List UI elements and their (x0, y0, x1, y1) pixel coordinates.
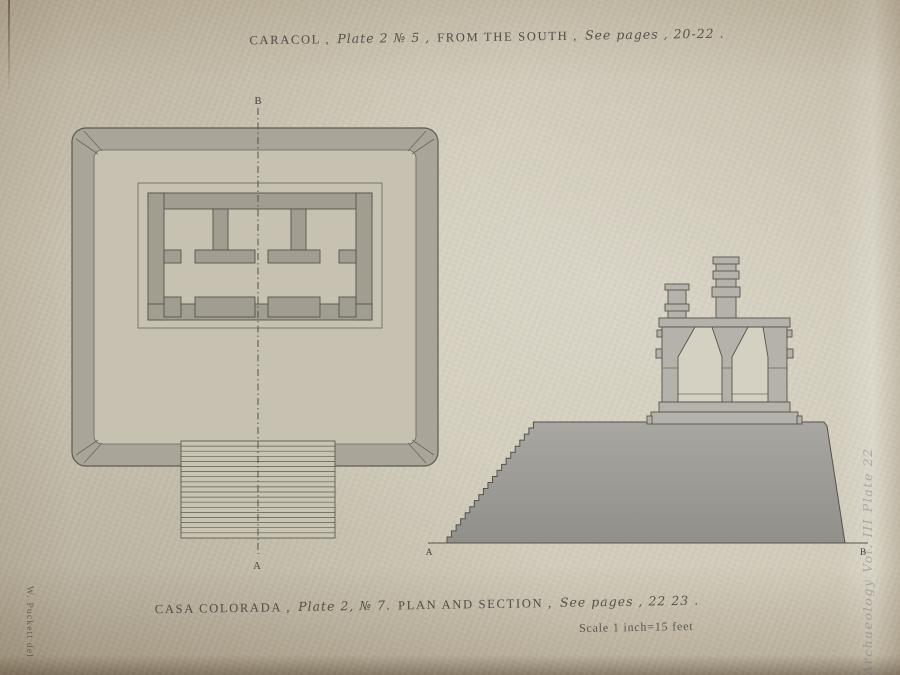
section-drawing: A B (420, 250, 885, 570)
scale-note: Scale 1 inch=15 feet (579, 619, 694, 636)
caption-page-reference: See pages , 20-22 . (585, 26, 725, 43)
roof-stub-east-cap (713, 257, 739, 264)
wall-mid-stub-west (164, 250, 181, 263)
west-cornice-bump-lower (656, 349, 662, 358)
roof-stub-west-cap (665, 284, 689, 290)
wall-south-band (148, 304, 372, 320)
base-foot-west (647, 416, 652, 424)
caption-page-reference: See pages , 22 23 . (560, 593, 699, 610)
caption-view-description: PLAN AND SECTION , (398, 596, 553, 613)
caption-monument-name: CARACOL , (249, 32, 330, 48)
base-foot-east (797, 416, 802, 424)
page-edge-crease (8, 0, 10, 95)
roof-stub-east-moulding-upper (713, 271, 739, 279)
artist-credit: W. Puckett del (24, 586, 34, 671)
pencil-annotation: Archaeology Vol. III Plate 22 (860, 385, 888, 675)
building-plan (138, 183, 382, 328)
wall-north-band (148, 193, 372, 209)
ground-baseline: A B (426, 543, 868, 558)
wall-south-bar-east (268, 297, 320, 317)
building-section (647, 257, 802, 424)
mound-profile (447, 422, 845, 543)
roof-stub-west-moulding (665, 304, 689, 311)
wall-south-bar-west (195, 297, 255, 317)
wall-east-band (356, 193, 372, 320)
wall-south-stub-west (164, 297, 181, 317)
baseline-label-a: A (426, 548, 433, 558)
caption-plate-number: Plate 2 № 5 , (337, 30, 430, 46)
wall-tbar-east (268, 250, 320, 263)
archival-plate-page: { "plate": { "top_caption": { "monument"… (0, 0, 900, 675)
east-cornice-bump-upper (787, 330, 792, 337)
cornice-band (659, 318, 790, 327)
wall-mid-stub-east (339, 250, 356, 263)
section-line-label-a: A (253, 561, 261, 572)
roof-stub-east-moulding-lower (712, 287, 740, 297)
plan-drawing: B A (55, 90, 475, 600)
wall-pier-east (291, 209, 306, 250)
caption-monument-name: CASA COLORADA , (155, 600, 292, 617)
wall-west-band (148, 193, 164, 320)
east-cornice-bump-lower (787, 349, 793, 358)
wall-tbar-west (195, 250, 255, 263)
wall-pier-west (213, 209, 228, 250)
caption-view-description: FROM THE SOUTH , (437, 29, 578, 46)
west-cornice-bump-upper (657, 330, 662, 337)
caption-plate-number: Plate 2, № 7. (298, 598, 391, 614)
section-line-label-b: B (254, 96, 261, 107)
base-tier-lower (651, 412, 798, 424)
base-tier-upper (659, 402, 790, 412)
wall-south-stub-east (339, 297, 356, 317)
